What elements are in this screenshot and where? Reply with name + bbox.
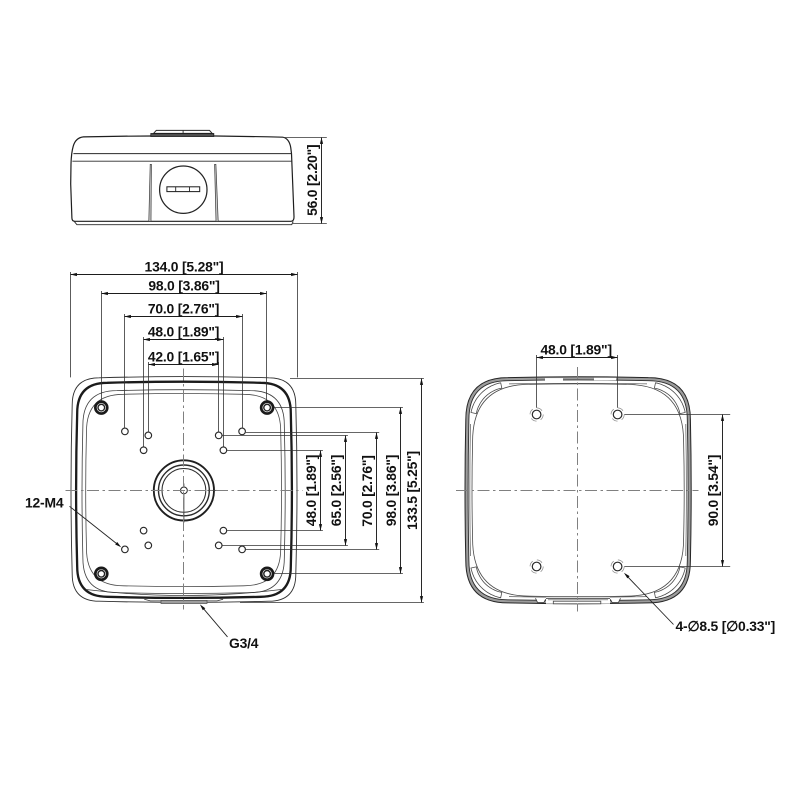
svg-text:70.0 [2.76"]: 70.0 [2.76"] bbox=[148, 301, 219, 317]
svg-text:70.0 [2.76"]: 70.0 [2.76"] bbox=[359, 455, 375, 526]
svg-text:48.0 [1.89"]: 48.0 [1.89"] bbox=[303, 455, 319, 526]
svg-text:G3/4: G3/4 bbox=[229, 635, 259, 651]
svg-text:48.0 [1.89"]: 48.0 [1.89"] bbox=[148, 324, 219, 340]
svg-text:134.0 [5.28"]: 134.0 [5.28"] bbox=[145, 259, 224, 275]
svg-text:65.0 [2.56"]: 65.0 [2.56"] bbox=[328, 455, 344, 526]
svg-text:12-M4: 12-M4 bbox=[25, 495, 64, 511]
svg-text:56.0 [2.20"]: 56.0 [2.20"] bbox=[304, 145, 320, 216]
svg-text:48.0 [1.89"]: 48.0 [1.89"] bbox=[541, 342, 612, 358]
svg-text:98.0 [3.86"]: 98.0 [3.86"] bbox=[383, 455, 399, 526]
svg-text:90.0 [3.54"]: 90.0 [3.54"] bbox=[705, 455, 721, 526]
svg-text:42.0 [1.65"]: 42.0 [1.65"] bbox=[148, 349, 219, 365]
svg-text:133.5 [5.25"]: 133.5 [5.25"] bbox=[404, 451, 420, 530]
svg-text:98.0 [3.86"]: 98.0 [3.86"] bbox=[148, 278, 219, 294]
svg-text:4-∅8.5 [∅0.33"]: 4-∅8.5 [∅0.33"] bbox=[676, 618, 776, 634]
